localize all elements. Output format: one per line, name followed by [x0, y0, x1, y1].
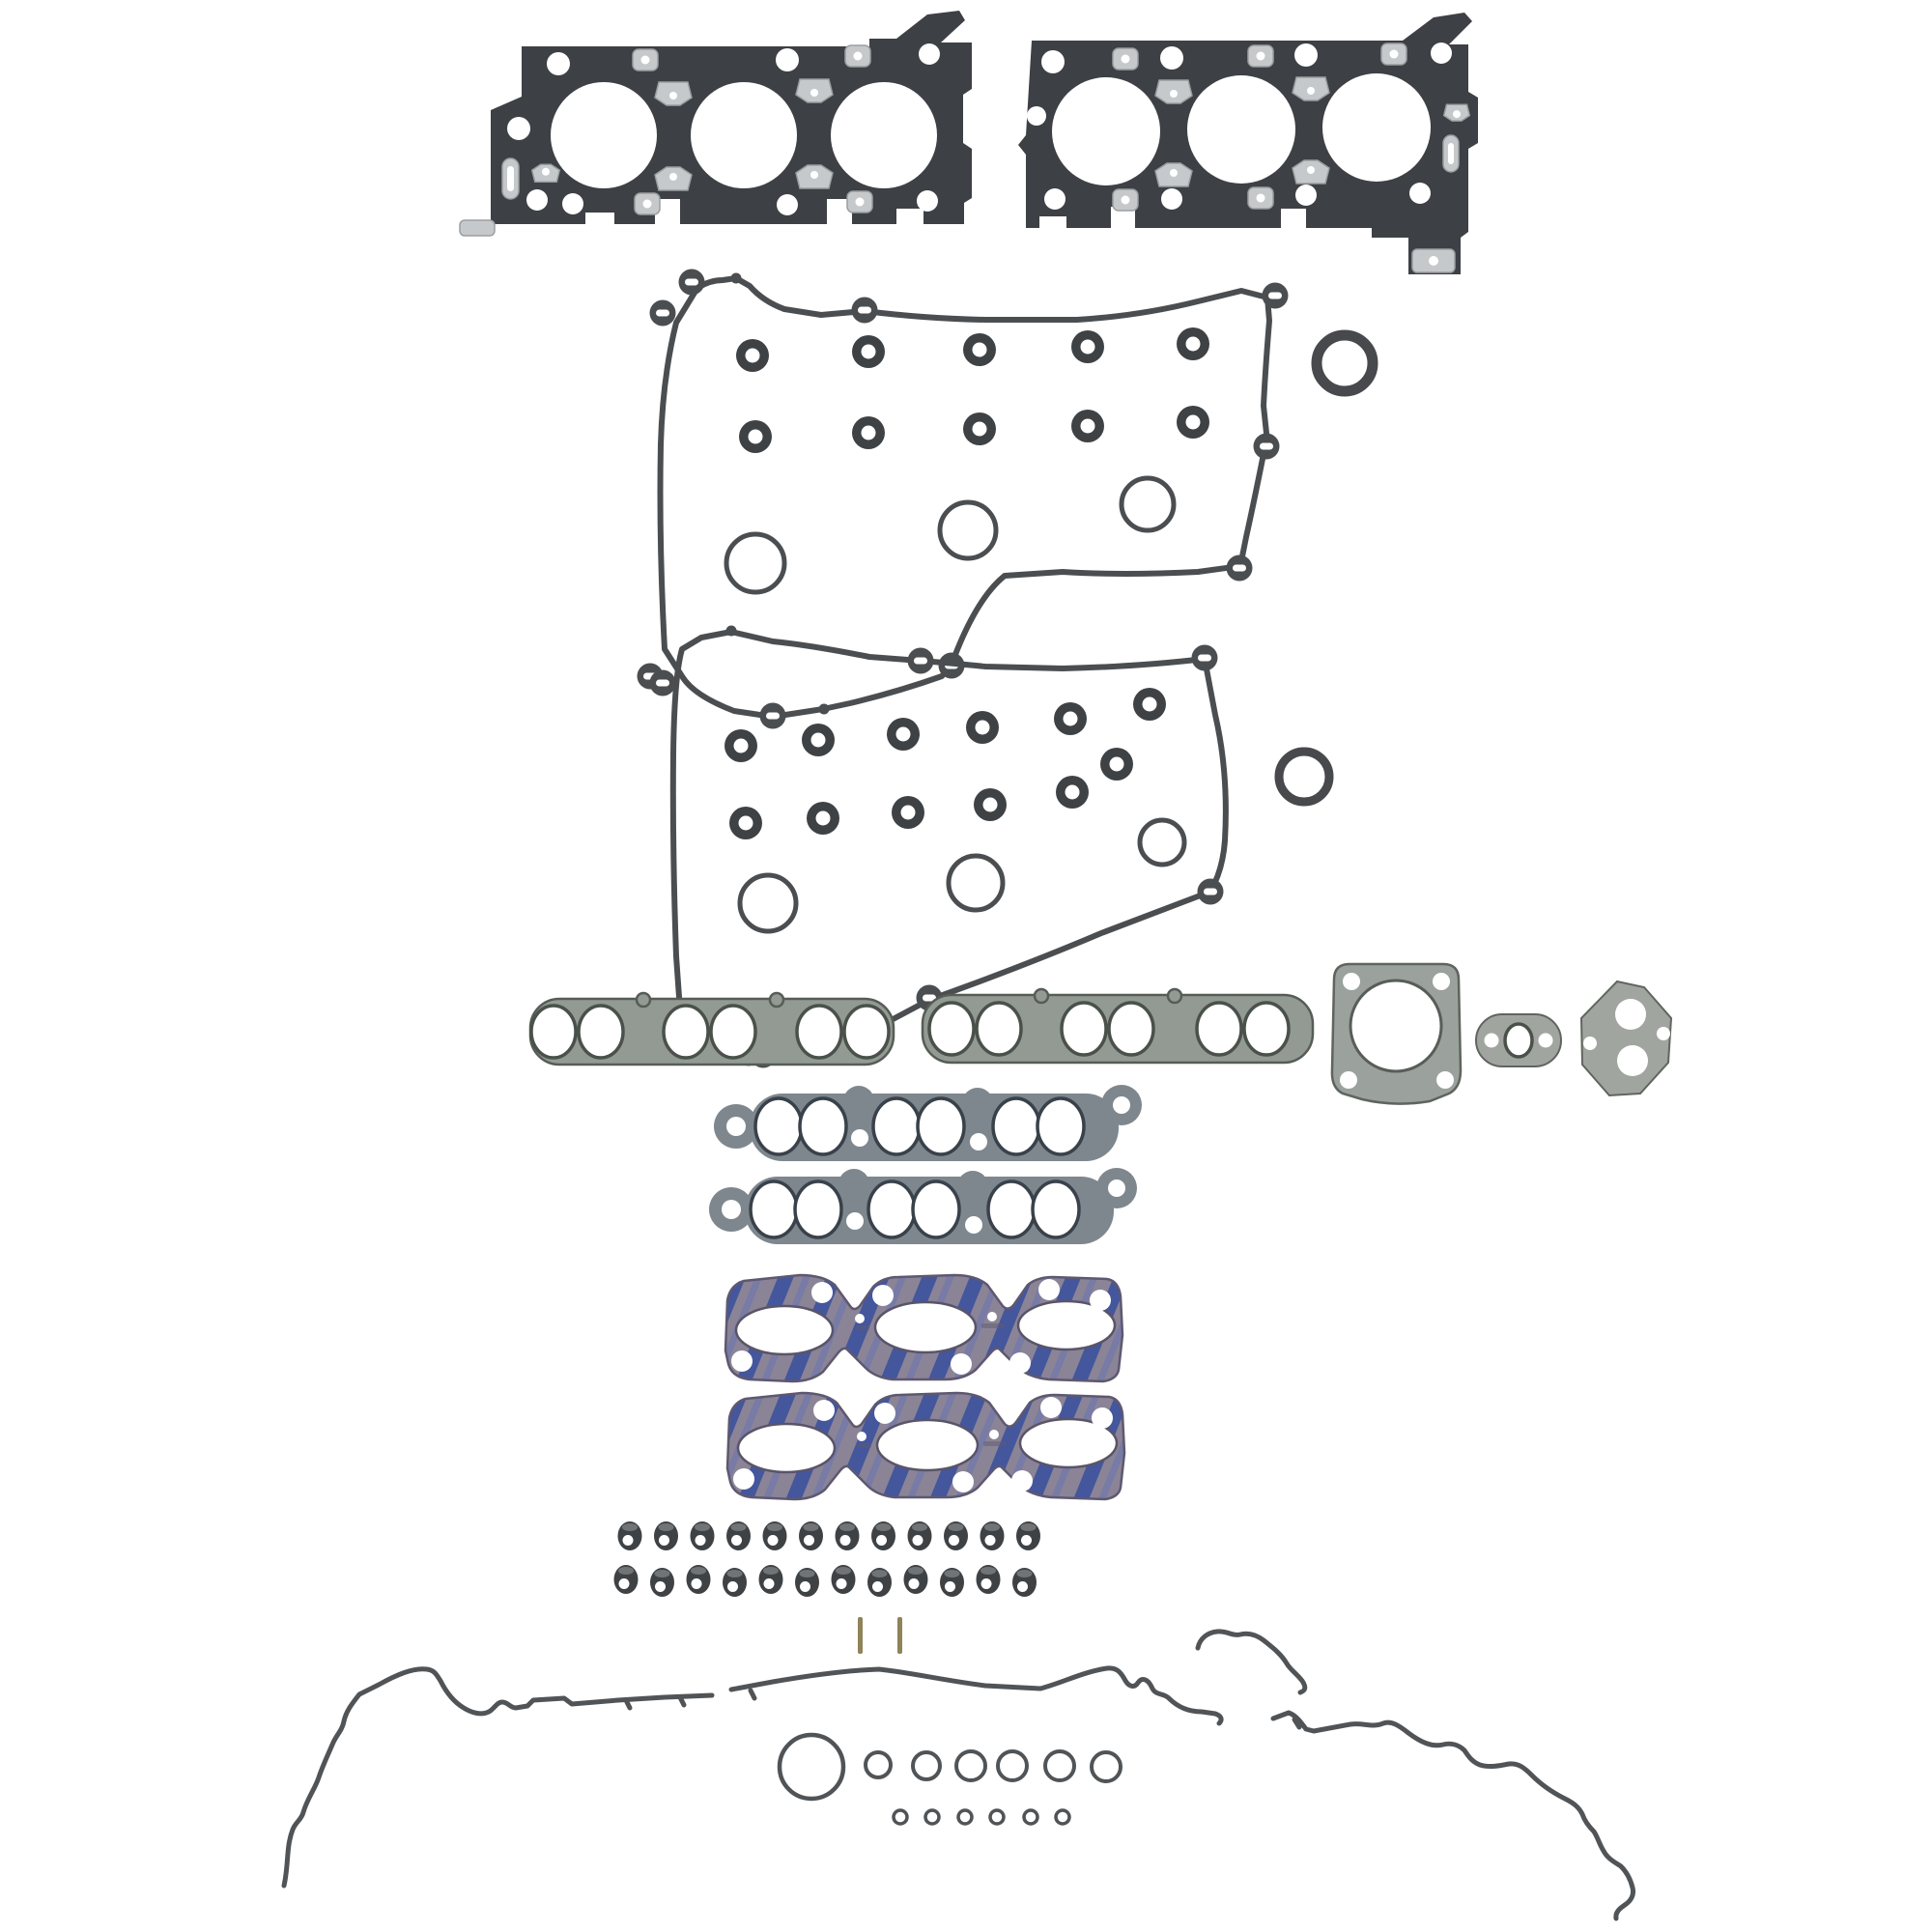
runner-rear-ports-detail	[795, 1181, 841, 1237]
runner-front-bump-2	[962, 1088, 993, 1119]
oring-assortment-detail	[913, 1752, 940, 1779]
head-gasket-left-bores-detail	[691, 82, 797, 188]
head-gasket-right-details-detail	[1257, 52, 1265, 61]
valve-cover-rear-eyelets-detail	[726, 626, 737, 637]
head-gasket-left-details-detail	[776, 48, 799, 71]
oring-assortment-detail	[925, 1810, 939, 1824]
valve-stem-seals-detail	[1017, 1581, 1028, 1592]
valve-stem-seals-detail	[695, 1523, 710, 1531]
runner-front-ports-detail	[755, 1098, 802, 1154]
head-gasket-right-details-detail	[1429, 256, 1438, 266]
valve-cover-front-eyelets-detail	[1260, 443, 1273, 450]
plenum-right-bumps-detail	[1035, 989, 1048, 1003]
valve-stem-seals-detail	[623, 1535, 634, 1546]
valve-stem-seals-detail	[980, 1567, 996, 1575]
valve-cover-front-eyelets-detail	[1268, 293, 1282, 299]
valve-stem-seals-detail	[727, 1570, 743, 1577]
valve-cover-rear-grommets-detail	[734, 739, 749, 753]
valve-cover-rear-grommets-detail	[739, 816, 753, 831]
egr-gasket-holes-detail	[1583, 1037, 1597, 1050]
head-gasket-right-bores-detail	[1322, 73, 1431, 182]
valve-stem-seals-detail	[945, 1570, 960, 1577]
runner-rear-ports-detail	[1108, 1179, 1125, 1197]
plenum-left-ports-detail	[664, 1006, 708, 1058]
throttle-bolt-holes-detail	[1436, 1071, 1454, 1089]
head-gasket-left-details-detail	[507, 166, 514, 191]
exhaust-manifold-gasket-lower	[727, 1393, 1124, 1499]
plenum-left-bumps-detail	[770, 993, 783, 1007]
exhaust-upper-holes-detail	[981, 1323, 1005, 1328]
plenum-left-ports-detail	[531, 1006, 576, 1058]
runner-rear-ports-detail	[965, 1216, 982, 1234]
head-gasket-right-details-detail	[1160, 46, 1183, 70]
valve-cover-rear-grommets-detail	[811, 733, 826, 748]
valve-cover-rear-spark-tube-seals-detail	[949, 856, 1003, 910]
throttle-bolt-holes-detail	[1340, 1071, 1357, 1089]
exhaust-lower-holes-detail	[952, 1471, 974, 1492]
valve-cover-rear-eyelets-detail	[1204, 889, 1217, 895]
head-gasket-right-details-detail	[1431, 43, 1452, 64]
front-cover-center-run	[731, 1668, 1221, 1723]
plenum-left-ports-detail	[579, 1006, 623, 1058]
cam-seal-orings-detail	[1279, 752, 1329, 802]
valve-stem-seals-detail	[804, 1535, 814, 1546]
exhaust-upper-ports	[736, 1301, 1115, 1354]
water-outlet-gasket	[1476, 1014, 1561, 1066]
head-gasket-right-details-detail	[1041, 50, 1065, 73]
valve-stem-seals-detail	[800, 1570, 815, 1577]
valve-stem-seals-detail	[949, 1523, 964, 1531]
head-gasket-left-details-detail	[856, 198, 865, 207]
valve-cover-front-spark-tube-seals-detail	[726, 534, 784, 592]
plenum-right-ports-detail	[1197, 1003, 1241, 1055]
valve-cover-rear-grommets-detail	[976, 721, 990, 735]
valve-cover-rear-grommets	[724, 688, 1166, 839]
valve-cover-rear-eyelets-detail	[656, 680, 669, 687]
exhaust-upper-holes-detail	[855, 1314, 865, 1323]
valve-stem-seals-detail	[691, 1567, 706, 1575]
egr-gasket-holes-detail	[1615, 999, 1646, 1030]
throttle-bolt-holes-detail	[1343, 973, 1360, 990]
runner-rear-ports-detail	[751, 1181, 797, 1237]
runner-front-ports-detail	[1037, 1098, 1084, 1154]
dowel-pins	[858, 1617, 902, 1654]
product-image	[0, 0, 1932, 1932]
head-gasket-left-details-detail	[810, 89, 818, 97]
intake-runner-gasket-front	[714, 1085, 1142, 1161]
valve-cover-rear-grommets-detail	[1110, 757, 1124, 772]
head-gasket-right-details-detail	[1294, 43, 1318, 67]
valve-stem-seals-detail	[731, 1535, 742, 1546]
valve-cover-rear-grommets-detail	[901, 806, 916, 820]
head-gasket-right-details-detail	[1122, 55, 1130, 64]
head-gasket-right-details-detail	[1409, 183, 1431, 204]
valve-stem-seals-detail	[619, 1578, 630, 1589]
valve-cover-rear-grommets-detail	[983, 798, 998, 812]
valve-stem-seals-detail	[981, 1578, 992, 1589]
runner-rear-bump-2	[957, 1171, 988, 1202]
oring-assortment-detail	[1092, 1752, 1121, 1781]
plenum-right-ports-detail	[1244, 1003, 1289, 1055]
valve-cover-rear-eyelets-detail	[914, 658, 927, 665]
head-gasket-right-details-detail	[1390, 50, 1399, 59]
exhaust-upper-holes-detail	[811, 1282, 833, 1303]
head-gasket-right-details-detail	[1170, 169, 1178, 177]
oring-assortment-detail	[998, 1751, 1027, 1780]
valve-stem-seals-detail	[949, 1535, 959, 1546]
exhaust-lower-holes-detail	[857, 1432, 867, 1441]
head-gasket-left-details-detail	[542, 168, 550, 176]
oring-assortment-detail	[894, 1810, 907, 1824]
valve-stem-seals-detail	[912, 1523, 927, 1531]
front-cover-left-run	[284, 1669, 712, 1886]
plenum-right-bumps-detail	[1168, 989, 1181, 1003]
egr-gasket-holes-detail	[1657, 1027, 1670, 1040]
cam-seal-orings	[1279, 335, 1373, 802]
runner-rear-ports-detail	[1033, 1181, 1079, 1237]
valve-cover-front-grommets-detail	[862, 345, 876, 359]
front-cover-right-run	[1273, 1713, 1634, 1918]
water-outlet-holes-detail	[1539, 1034, 1553, 1048]
valve-cover-front-eyelets-detail	[766, 713, 780, 720]
oring-assortment	[780, 1735, 1121, 1824]
runner-front-ports-detail	[993, 1098, 1039, 1154]
exhaust-upper-ports-detail	[736, 1306, 833, 1354]
valve-cover-rear-spark-tube-seals-detail	[1140, 820, 1184, 865]
valve-cover-front-eyelets-detail	[656, 310, 669, 317]
head-gasket-right-details-detail	[1307, 166, 1315, 174]
exhaust-lower-holes-detail	[983, 1441, 1007, 1446]
runner-rear-ports-detail	[988, 1181, 1035, 1237]
exhaust-lower-ports-detail	[738, 1424, 835, 1472]
valve-cover-front-spark-tube-seals-detail	[940, 502, 996, 558]
valve-stem-seals-detail	[1021, 1523, 1037, 1531]
throttle-body-gasket	[1332, 964, 1461, 1104]
valve-stem-seals-detail	[764, 1578, 775, 1589]
front-cover-ticks	[626, 1690, 1299, 1727]
exhaust-upper-holes-detail	[1009, 1352, 1031, 1374]
valve-cover-front-grommets-detail	[1081, 340, 1095, 355]
cylinder-head-gasket-left	[460, 11, 972, 236]
valve-stem-seals-detail	[800, 1581, 810, 1592]
head-gasket-left-bores	[551, 82, 937, 188]
head-gasket-left-details-detail	[460, 220, 495, 236]
oring-assortment-detail	[1045, 1751, 1074, 1780]
valve-stem-seals-detail	[839, 1523, 855, 1531]
valve-stem-seals	[614, 1521, 1041, 1597]
head-gasket-left-details-detail	[562, 193, 583, 214]
valve-stem-seals-detail	[692, 1578, 702, 1589]
plenum-right-ports-detail	[977, 1003, 1021, 1055]
valve-stem-seals-detail	[659, 1523, 674, 1531]
runner-front-ports-detail	[800, 1098, 846, 1154]
exhaust-lower-holes-detail	[733, 1468, 754, 1490]
valve-cover-rear-grommets-detail	[1143, 697, 1157, 712]
valve-stem-seals-detail	[909, 1578, 920, 1589]
valve-stem-seals-detail	[767, 1523, 782, 1531]
valve-cover-front-grommets-detail	[973, 343, 987, 357]
valve-stem-seals-detail	[985, 1535, 996, 1546]
water-outlet-holes-detail	[1485, 1034, 1499, 1048]
valve-cover-front-spark-tube-seals-detail	[1122, 478, 1174, 530]
runner-rear-ports-detail	[846, 1212, 864, 1230]
exhaust-upper-holes-detail	[987, 1312, 997, 1321]
valve-stem-seals-detail	[872, 1570, 888, 1577]
oring-assortment-detail	[958, 1810, 972, 1824]
valve-stem-seals-detail	[876, 1523, 892, 1531]
valve-stem-seals-detail	[840, 1535, 851, 1546]
head-gasket-right-details-detail	[1027, 106, 1046, 126]
oring-assortment-detail	[1024, 1810, 1037, 1824]
valve-stem-seals-detail	[876, 1535, 887, 1546]
valve-cover-front-eyelets-detail	[858, 307, 871, 314]
plenum-left-ports-detail	[711, 1006, 755, 1058]
intake-runner-gasket-rear	[709, 1168, 1137, 1244]
plenum-right-ports-detail	[1062, 1003, 1106, 1055]
valve-cover-front-grommets-detail	[862, 426, 876, 440]
exhaust-upper-holes-detail	[872, 1285, 894, 1306]
valve-stem-seals-detail	[837, 1578, 847, 1589]
exhaust-lower-holes-detail	[989, 1430, 999, 1439]
cam-seal-orings-detail	[1317, 335, 1373, 391]
valve-stem-seals-detail	[872, 1581, 883, 1592]
exhaust-upper-holes-detail	[1038, 1279, 1060, 1300]
valve-cover-front-grommets-detail	[746, 349, 760, 363]
valve-stem-seals-detail	[655, 1581, 666, 1592]
valve-cover-front-grommets-detail	[1186, 415, 1201, 430]
head-gasket-right-details-detail	[1295, 185, 1317, 206]
exhaust-upper-ports-detail	[875, 1302, 976, 1352]
head-gasket-left-details-detail	[526, 189, 548, 211]
plenum-left-ports-detail	[844, 1006, 889, 1058]
cylinder-head-gasket-right	[1018, 13, 1478, 274]
head-gasket-right-bores-detail	[1187, 75, 1295, 184]
valve-cover-rear-grommets-detail	[1064, 712, 1078, 726]
head-gasket-right-details-detail	[1170, 90, 1178, 98]
valve-stem-seals-detail	[984, 1523, 1000, 1531]
valve-stem-seals-detail	[1021, 1535, 1032, 1546]
exhaust-upper-holes-detail	[1090, 1290, 1111, 1311]
exhaust-lower-holes-detail	[874, 1403, 895, 1424]
oring-assortment-detail	[866, 1752, 891, 1777]
water-outlet-holes-detail	[1505, 1024, 1532, 1057]
valve-cover-front-eyelets-detail	[819, 704, 830, 715]
valve-stem-seals-detail	[804, 1523, 819, 1531]
runner-front-ports-detail	[726, 1117, 746, 1136]
valve-cover-rear-spark-tube-seals	[740, 820, 1184, 931]
valve-stem-seals-detail	[622, 1523, 638, 1531]
head-gasket-right-details-detail	[1044, 188, 1065, 210]
runner-front-bump-1	[843, 1086, 874, 1117]
head-gasket-right-bores-detail	[1052, 77, 1160, 185]
exhaust-lower-holes-detail	[1092, 1407, 1113, 1429]
valve-stem-seals-detail	[731, 1523, 747, 1531]
valve-cover-rear-grommets-detail	[896, 727, 911, 742]
runner-rear-bump-1	[838, 1169, 869, 1200]
plenum-gasket-right	[923, 989, 1313, 1063]
head-gasket-left-details-detail	[810, 171, 818, 179]
valve-stem-seals-detail	[696, 1535, 706, 1546]
plenum-right-ports-detail	[929, 1003, 974, 1055]
head-gasket-left-bores-detail	[831, 82, 937, 188]
head-gasket-left-details-detail	[669, 92, 677, 99]
head-gasket-left-details-detail	[641, 56, 650, 65]
runner-front-ports-detail	[851, 1129, 868, 1147]
plenum-left-ports-detail	[797, 1006, 841, 1058]
valve-cover-rear-spark-tube-seals-detail	[740, 875, 796, 931]
valve-stem-seals-detail	[727, 1581, 738, 1592]
runner-front-ports-detail	[873, 1098, 920, 1154]
exhaust-lower-ports-detail	[877, 1420, 978, 1470]
oring-assortment-detail	[780, 1735, 843, 1799]
head-gasket-left-details-detail	[643, 200, 652, 209]
throttle-bore-hole	[1350, 980, 1441, 1071]
head-gasket-right-details-detail	[1448, 143, 1454, 164]
head-gasket-right-details-detail	[1257, 194, 1265, 203]
runner-rear-ports-detail	[913, 1181, 959, 1237]
valve-cover-front-grommets-detail	[1186, 337, 1201, 352]
exhaust-lower-holes-detail	[1011, 1470, 1033, 1492]
head-gasket-left-bores-detail	[551, 82, 657, 188]
valve-cover-front-grommets-detail	[749, 430, 763, 444]
runner-rear-ports-detail	[722, 1200, 741, 1219]
valve-stem-seals-detail	[1017, 1570, 1033, 1577]
exhaust-upper-holes-detail	[951, 1353, 972, 1375]
valve-cover-front-eyelets-detail	[1233, 565, 1246, 572]
head-gasket-left-details-detail	[669, 173, 677, 181]
exhaust-upper-holes-detail	[731, 1350, 753, 1372]
plenum-gasket-left	[530, 993, 894, 1065]
oring-assortment-detail	[990, 1810, 1004, 1824]
valve-stem-seals-detail	[768, 1535, 779, 1546]
exhaust-upper-holes-detail	[856, 1325, 869, 1330]
runner-rear-ports	[722, 1179, 1125, 1237]
exhaust-lower-holes-detail	[1040, 1397, 1062, 1418]
exhaust-manifold-gasket-upper	[725, 1275, 1122, 1381]
valve-stem-seals-detail	[763, 1567, 779, 1575]
runner-rear-ports-detail	[868, 1181, 915, 1237]
exhaust-lower-holes-detail	[813, 1400, 835, 1421]
oring-assortment-detail	[1056, 1810, 1069, 1824]
valve-cover-rear-grommets-detail	[816, 811, 831, 826]
head-gasket-right-details-detail	[1161, 188, 1182, 210]
head-gasket-left-details-detail	[854, 52, 863, 61]
valve-stem-seals-detail	[945, 1581, 955, 1592]
valve-cover-front-grommets-detail	[973, 422, 987, 437]
dowel-pins-detail	[858, 1617, 863, 1654]
valve-cover-rear-eyelets-detail	[1198, 655, 1211, 662]
valve-cover-front-eyelets-detail	[731, 273, 742, 284]
egr-valve-gasket	[1581, 981, 1671, 1095]
head-gasket-left-details-detail	[507, 117, 530, 140]
valve-stem-seals-detail	[908, 1567, 923, 1575]
egr-gasket-body	[1581, 981, 1671, 1095]
plenum-left-bumps-detail	[637, 993, 650, 1007]
runner-front-ports-detail	[1113, 1096, 1130, 1114]
head-gasket-right-details-detail	[1307, 87, 1315, 95]
runner-front-ports-detail	[918, 1098, 964, 1154]
valve-stem-seals-detail	[618, 1567, 634, 1575]
valve-stem-seals-detail	[913, 1535, 923, 1546]
valve-cover-front-eyelets-detail	[685, 279, 698, 286]
valve-stem-seals-detail	[659, 1535, 669, 1546]
head-gasket-left-details-detail	[777, 194, 798, 215]
front-cover-hook-segment	[1198, 1632, 1305, 1692]
head-gasket-right-details-detail	[1122, 196, 1130, 205]
valve-stem-seals-detail	[655, 1570, 670, 1577]
head-gasket-right-details-detail	[1453, 110, 1461, 118]
valve-cover-rear-grommets-detail	[1065, 785, 1080, 800]
valve-stem-seals-detail	[836, 1567, 851, 1575]
valve-cover-front-grommets-detail	[1081, 419, 1095, 434]
head-gasket-left-details-detail	[547, 52, 570, 75]
plenum-right-ports-detail	[1109, 1003, 1153, 1055]
runner-front-ports	[726, 1096, 1130, 1154]
oring-assortment-detail	[956, 1751, 985, 1780]
throttle-bolt-holes-detail	[1433, 973, 1450, 990]
gasket-set-photo	[0, 0, 1932, 1932]
head-gasket-left-details-detail	[917, 190, 938, 212]
runner-front-ports-detail	[970, 1133, 987, 1151]
valve-cover-front-grommets	[736, 327, 1209, 453]
exhaust-lower-holes-detail	[858, 1443, 871, 1448]
exhaust-lower-ports	[738, 1419, 1117, 1472]
egr-gasket-holes-detail	[1617, 1045, 1648, 1076]
head-gasket-right-bores	[1052, 73, 1431, 185]
dowel-pins-detail	[897, 1617, 902, 1654]
head-gasket-left-details-detail	[919, 43, 940, 65]
